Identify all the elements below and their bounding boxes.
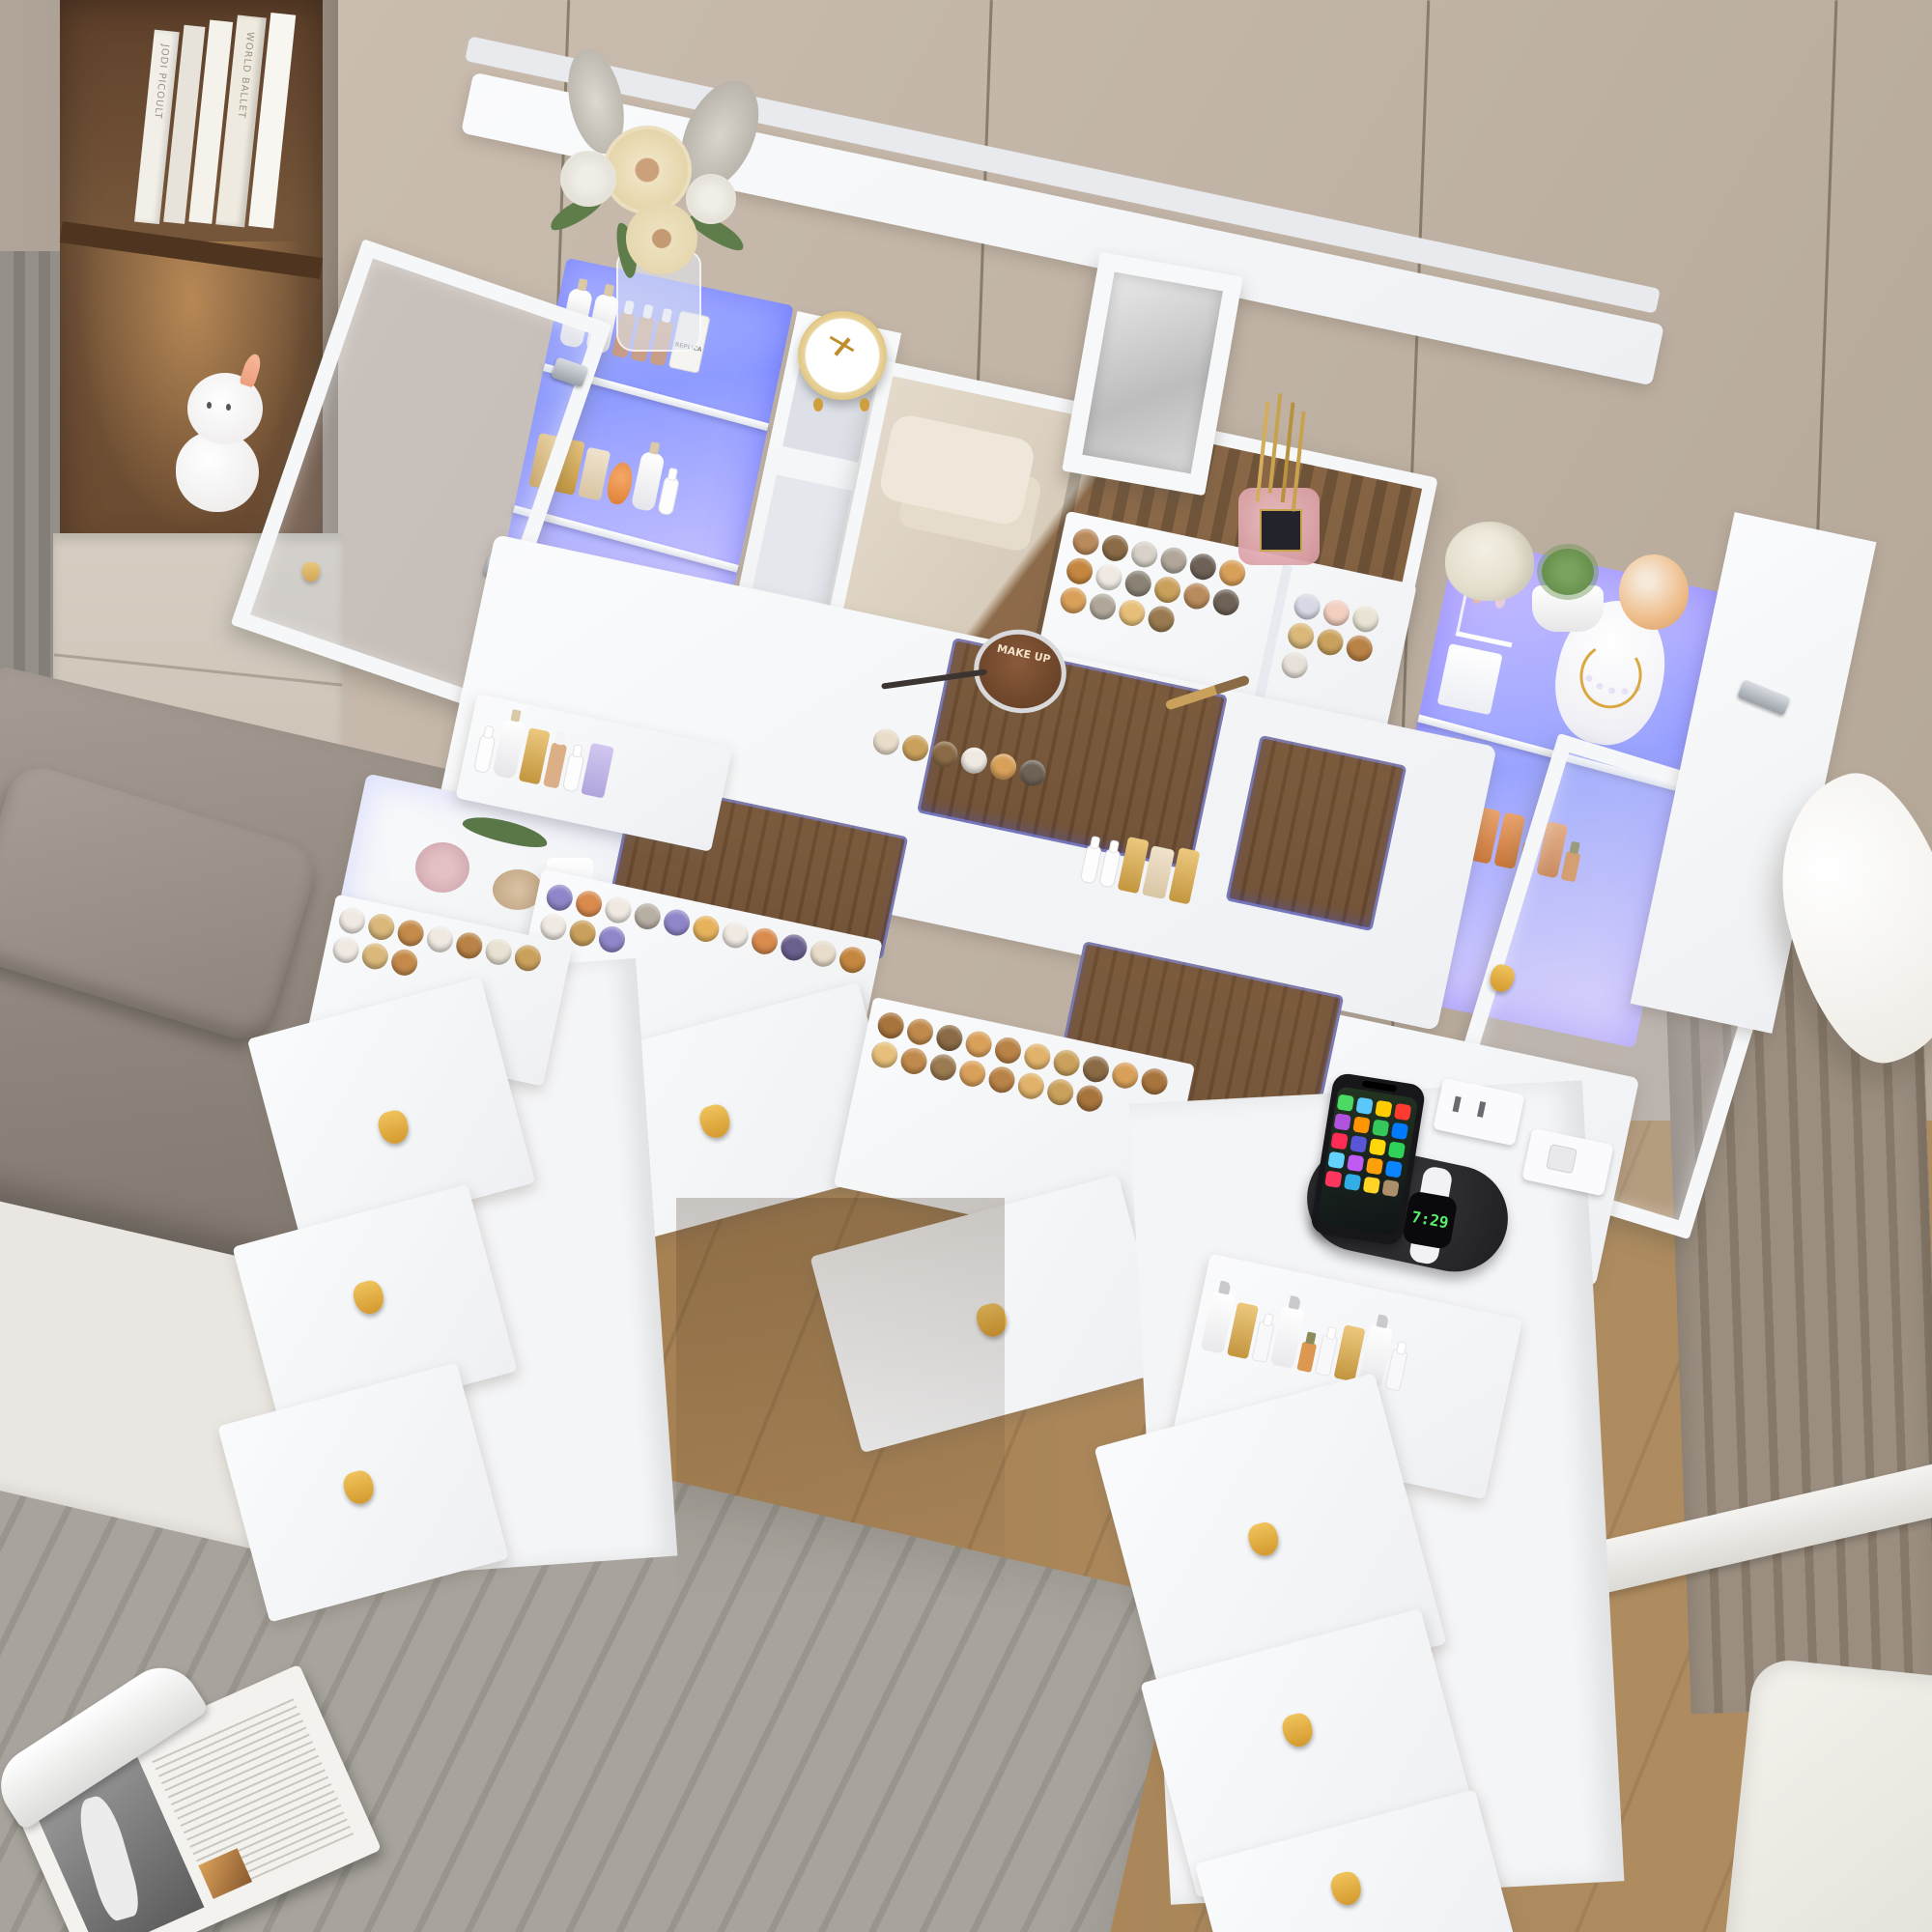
cosmetic-jar: [662, 907, 693, 938]
cosmetic-jar: [544, 882, 575, 913]
cosmetic-jar: [1139, 1066, 1170, 1097]
cosmetic-jar: [691, 913, 722, 944]
frame-art: [1082, 272, 1223, 474]
drawer-knob: [351, 1278, 387, 1318]
cosmetic-jar: [454, 930, 485, 961]
drawer-knob: [1245, 1520, 1282, 1559]
cosmetic-jar: [988, 752, 1019, 782]
app-icon: [1337, 1094, 1354, 1112]
cosmetic-jar: [963, 1029, 994, 1060]
watch-face: 7:29: [1402, 1190, 1459, 1250]
left-return-drawer-items: [471, 713, 618, 800]
unicorn-figurine: [162, 367, 278, 512]
cosmetic-jar: [1350, 604, 1381, 635]
kneehole-shadow: [676, 1198, 1005, 1604]
cosmetic-jar: [1129, 539, 1160, 570]
book-spine-title: JODI PICOULT: [152, 43, 170, 120]
cosmetic-jar: [1045, 1077, 1076, 1108]
cosmetic-jar: [1022, 1041, 1053, 1072]
door-hinge: [551, 356, 588, 387]
outlet-slots: [1477, 1101, 1486, 1118]
cosmetic-jar: [779, 932, 810, 963]
app-icon: [1366, 1157, 1383, 1175]
succulent-pot: [1526, 553, 1609, 632]
right-door-knob: [1487, 962, 1517, 995]
cosmetic-jar: [808, 938, 838, 969]
cosmetic-jar: [870, 726, 901, 757]
cosmetic-jar: [1146, 604, 1177, 635]
dahlia-flower: [603, 126, 692, 214]
cosmetic-jar: [838, 945, 868, 976]
cosmetic-jar: [986, 1065, 1017, 1095]
drawer-knob: [1328, 1869, 1365, 1909]
outlet-slots: [1453, 1096, 1462, 1113]
cosmetic-jar: [1315, 627, 1346, 658]
cosmetic-jar: [934, 1023, 965, 1054]
peach-ornament: [1619, 554, 1689, 630]
cosmetic-jar: [1122, 568, 1153, 599]
app-icon: [1352, 1116, 1370, 1133]
app-icon: [1327, 1151, 1345, 1169]
cosmetic-jar: [424, 923, 455, 954]
cosmetic-jar: [330, 934, 361, 965]
reed-diffuser-pink: [1235, 440, 1323, 565]
cosmetic-jar: [1187, 552, 1218, 582]
cosmetic-jar: [567, 918, 598, 949]
white-rose: [686, 174, 736, 224]
cosmetic-jar: [512, 943, 543, 974]
polish-bottle: [1296, 1342, 1317, 1373]
app-icon: [1363, 1177, 1380, 1194]
drawer-knob: [1280, 1711, 1317, 1750]
cosmetic-jar: [1321, 597, 1351, 628]
cosmetic-jar: [929, 739, 960, 770]
cosmetic-jar: [336, 905, 367, 936]
white-rose: [560, 151, 616, 207]
cosmetic-jar: [720, 920, 751, 951]
cosmetic-jar: [1292, 591, 1322, 622]
app-icon: [1347, 1154, 1364, 1172]
unicorn-eye: [226, 404, 231, 411]
app-icon: [1385, 1160, 1403, 1178]
dropperW-bottle: [1384, 1349, 1407, 1391]
bedroom-vanity-scene: JODI PICOULT WORLD BALLET RE: [0, 0, 1932, 1932]
cosmetic-jar: [1110, 1060, 1141, 1091]
app-icon: [1394, 1103, 1411, 1121]
drawer-knob: [341, 1468, 378, 1508]
flower-bouquet: [541, 58, 773, 348]
app-icon: [1344, 1174, 1361, 1191]
bed-blanket-corner: [1724, 1657, 1932, 1932]
cosmetic-jar: [869, 1039, 900, 1070]
clock-leg: [860, 398, 869, 412]
cosmetic-jar: [1080, 1054, 1111, 1085]
cosmetic-jar: [1051, 1047, 1082, 1078]
lav-bottle: [581, 743, 614, 799]
orange-bottle: [604, 460, 636, 506]
cosmetic-jar: [1087, 591, 1118, 622]
app-icon: [1388, 1141, 1406, 1158]
cosmetic-jar: [596, 923, 627, 954]
cosmetic-jar: [1070, 526, 1101, 557]
cosmetic-jar: [1017, 757, 1048, 788]
cosmetic-jar: [958, 745, 989, 776]
cosmetic-jar: [483, 936, 514, 967]
cosmetic-jar: [1181, 581, 1212, 611]
gold-clock: [798, 311, 891, 417]
cosmetic-jar: [603, 895, 634, 925]
book-row: JODI PICOULT WORLD BALLET: [133, 1, 340, 251]
app-icon: [1330, 1132, 1348, 1150]
white-pumpkin: [1445, 522, 1534, 601]
cosmetic-jar: [1099, 532, 1130, 563]
cosmetic-jar: [574, 889, 605, 920]
app-icon: [1381, 1179, 1399, 1197]
cosmetic-jar: [1065, 555, 1095, 586]
cosmetic-jar: [1074, 1083, 1105, 1114]
cosmetic-jar: [359, 941, 390, 972]
cosmetic-jar: [898, 1045, 929, 1076]
cosmetic-jar: [750, 925, 781, 956]
cosmetic-jar: [366, 912, 397, 943]
app-icon: [1375, 1100, 1392, 1118]
mirror-reflection-bed: [877, 412, 1037, 527]
app-icon: [1391, 1122, 1408, 1140]
cosmetic-jar: [1210, 586, 1241, 617]
unicorn-eye: [207, 402, 212, 409]
cosmetic-jar: [905, 1016, 936, 1047]
cosmetic-jar: [957, 1058, 988, 1089]
dahlia-flower: [626, 203, 697, 274]
cosmetic-jar: [389, 947, 420, 978]
outlet-plug: [1546, 1144, 1577, 1174]
jewelry-box: [1437, 643, 1503, 715]
app-icon: [1334, 1113, 1351, 1130]
drawer-knob: [696, 1102, 733, 1142]
cosmetic-jar: [1015, 1070, 1046, 1101]
cosmetic-jar: [1117, 597, 1148, 628]
cosmetic-jar: [992, 1035, 1023, 1065]
cosmetic-jar: [1286, 620, 1317, 651]
drawer-knob: [376, 1108, 412, 1148]
app-icon: [1324, 1171, 1342, 1188]
cosmetic-jar: [1344, 633, 1375, 664]
cosmetic-jar: [395, 918, 426, 949]
clock-body: [798, 311, 887, 400]
app-icon: [1369, 1138, 1386, 1155]
serum-bottle: [657, 475, 680, 516]
cosmetic-jar: [632, 901, 663, 932]
cream-bottle: [578, 447, 611, 501]
cosmetic-jar: [1158, 545, 1189, 576]
pink-rose: [415, 842, 469, 893]
cosmetic-jar: [1094, 562, 1124, 593]
succulent: [1542, 549, 1594, 595]
cosmetic-jar: [875, 1010, 906, 1041]
book-spine-title: WORLD BALLET: [236, 31, 255, 119]
side-cabinet-seam: [54, 653, 343, 686]
cosmetic-jar: [1279, 650, 1310, 681]
app-icon: [1350, 1135, 1367, 1152]
cosmetic-jar: [1152, 575, 1183, 606]
app-icon: [1372, 1120, 1389, 1137]
clock-leg: [813, 398, 823, 412]
cosmetic-jar: [1058, 585, 1089, 616]
cosmetic-jar: [927, 1052, 958, 1083]
app-icon: [1355, 1097, 1373, 1115]
cosmetic-jar: [900, 732, 931, 763]
diffuser-label-black: [1260, 509, 1302, 552]
